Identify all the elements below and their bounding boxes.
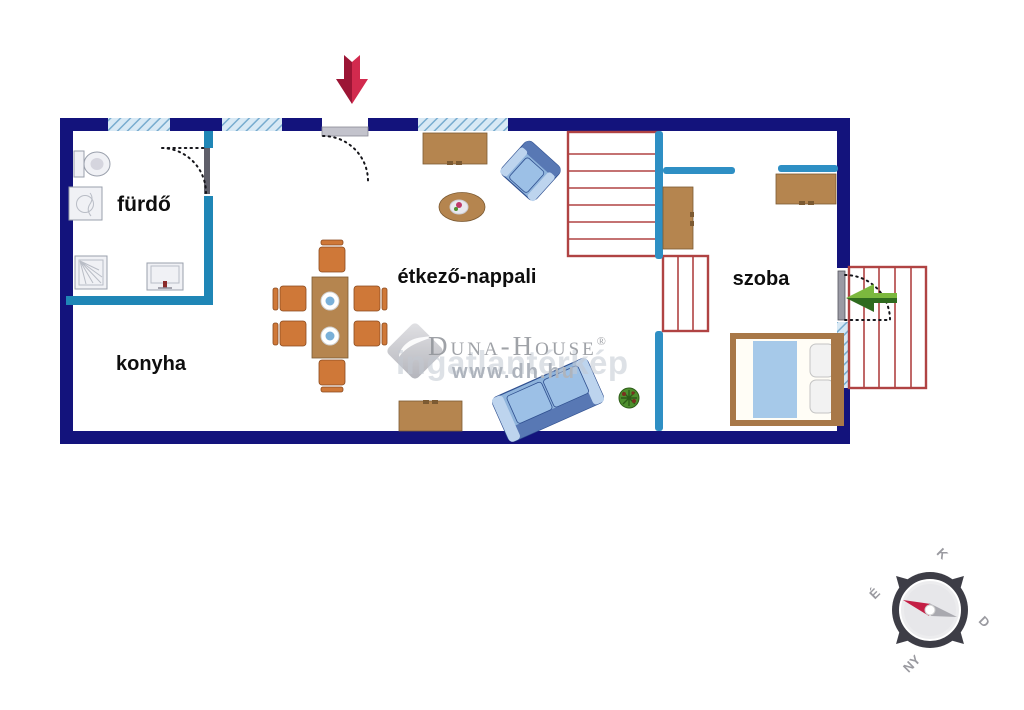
sink-icon bbox=[147, 263, 183, 290]
door-swing-arc bbox=[323, 136, 368, 181]
window-top-2 bbox=[222, 118, 282, 131]
compass-label-north: É bbox=[866, 585, 883, 602]
terrace-door-leaf bbox=[838, 271, 845, 320]
cabinet-under-window bbox=[423, 133, 487, 165]
sideboard-bottom bbox=[399, 400, 462, 431]
registered-mark: ® bbox=[597, 334, 609, 348]
desk-by-stairs bbox=[663, 187, 694, 249]
plant bbox=[619, 388, 639, 408]
compass-label-south: D bbox=[976, 613, 993, 630]
washing-machine-icon bbox=[69, 187, 102, 220]
round-side-table bbox=[439, 193, 485, 222]
watermark-brand-text: Duna-House bbox=[428, 331, 597, 361]
toilet-icon bbox=[74, 151, 110, 177]
watermark-brand: Duna-House® bbox=[428, 331, 609, 362]
armchair bbox=[499, 139, 563, 202]
watermark-url: www.dh.hu bbox=[452, 361, 576, 384]
compass-rose: É K D NY bbox=[862, 542, 998, 678]
bathroom-door-arc bbox=[162, 148, 206, 193]
window-top-1 bbox=[108, 118, 170, 131]
room-label-living-dining: étkező-nappali bbox=[398, 266, 537, 289]
main-entrance-arrow-icon bbox=[336, 55, 368, 104]
double-bed bbox=[733, 336, 842, 423]
bathroom-fixtures bbox=[69, 151, 183, 290]
dining-set bbox=[273, 240, 387, 392]
door-threshold bbox=[322, 127, 368, 136]
room-label-kitchen: konyha bbox=[116, 353, 186, 376]
dining-table bbox=[312, 277, 348, 358]
compass-label-west: NY bbox=[900, 652, 924, 676]
room-label-bathroom: fürdő bbox=[117, 193, 171, 217]
shower-icon bbox=[75, 256, 107, 289]
entrance-door bbox=[322, 118, 368, 181]
external-staircase bbox=[849, 267, 926, 388]
bed-headboard bbox=[831, 337, 842, 422]
floor-plan-canvas: É K D NY ingatlantérkép Duna-House® www.… bbox=[0, 0, 1024, 710]
compass-label-east: K bbox=[934, 545, 952, 563]
desk-bedroom bbox=[776, 174, 836, 205]
window-top-3 bbox=[418, 118, 508, 131]
room-label-bedroom: szoba bbox=[733, 268, 790, 291]
